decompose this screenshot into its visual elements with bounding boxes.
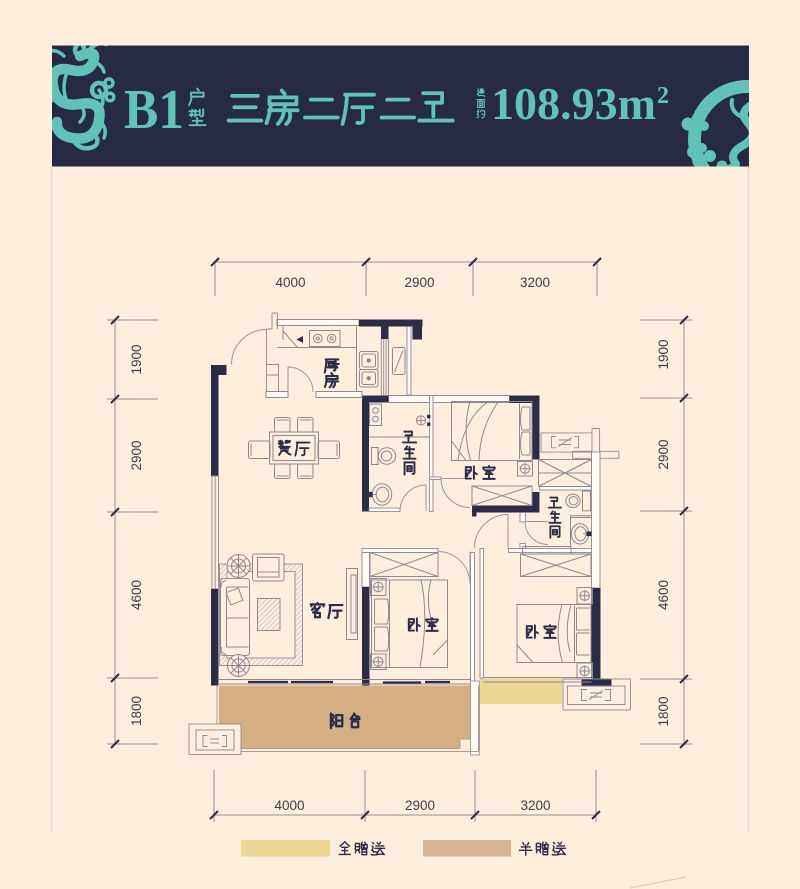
svg-text:2900: 2900 — [404, 275, 434, 290]
svg-text:108.93m: 108.93m — [491, 78, 656, 129]
svg-text:2900: 2900 — [656, 439, 671, 469]
svg-text:1900: 1900 — [656, 339, 671, 369]
svg-text:3200: 3200 — [520, 798, 550, 813]
svg-text:B1: B1 — [124, 79, 184, 141]
svg-text:4000: 4000 — [275, 275, 305, 290]
svg-text:4600: 4600 — [129, 580, 144, 610]
svg-text:1800: 1800 — [129, 696, 144, 726]
svg-text:4000: 4000 — [274, 798, 304, 813]
svg-text:2900: 2900 — [129, 440, 144, 470]
svg-text:3200: 3200 — [520, 275, 550, 290]
svg-text:1800: 1800 — [656, 696, 671, 726]
svg-text:2900: 2900 — [405, 798, 435, 813]
svg-text:1900: 1900 — [129, 344, 144, 374]
svg-text:4600: 4600 — [656, 580, 671, 610]
svg-text:2: 2 — [657, 83, 669, 109]
